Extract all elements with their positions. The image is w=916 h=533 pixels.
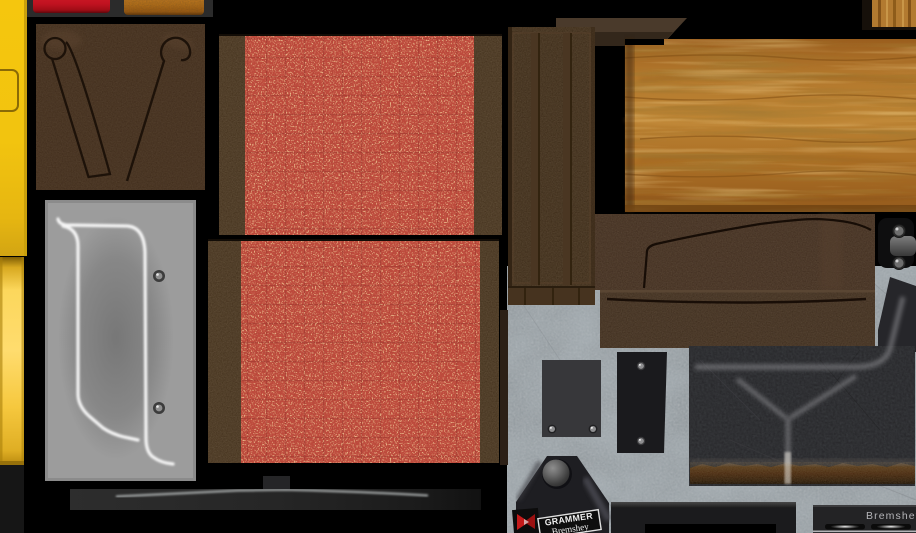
svg-text:Bremshey: Bremshey [866, 510, 916, 522]
